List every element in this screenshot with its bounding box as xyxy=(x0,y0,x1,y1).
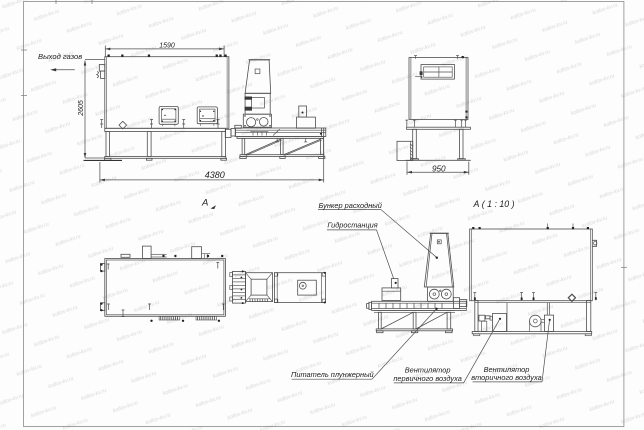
svg-text:А: А xyxy=(201,198,208,209)
svg-text:950: 950 xyxy=(432,164,446,173)
svg-text:первичного воздуха: первичного воздуха xyxy=(393,374,461,383)
svg-text:Питатель плунжерный: Питатель плунжерный xyxy=(291,370,374,379)
svg-text:2605: 2605 xyxy=(78,100,85,117)
svg-text:Гидростанция: Гидростанция xyxy=(327,220,377,229)
svg-text:А ( 1 : 10 ): А ( 1 : 10 ) xyxy=(473,199,515,209)
svg-text:вторичного воздуха: вторичного воздуха xyxy=(471,373,541,382)
svg-text:1590: 1590 xyxy=(159,42,175,49)
svg-text:Бункер расходный: Бункер расходный xyxy=(319,201,382,210)
svg-text:Выход газов: Выход газов xyxy=(38,52,82,61)
svg-text:4380: 4380 xyxy=(205,170,225,180)
